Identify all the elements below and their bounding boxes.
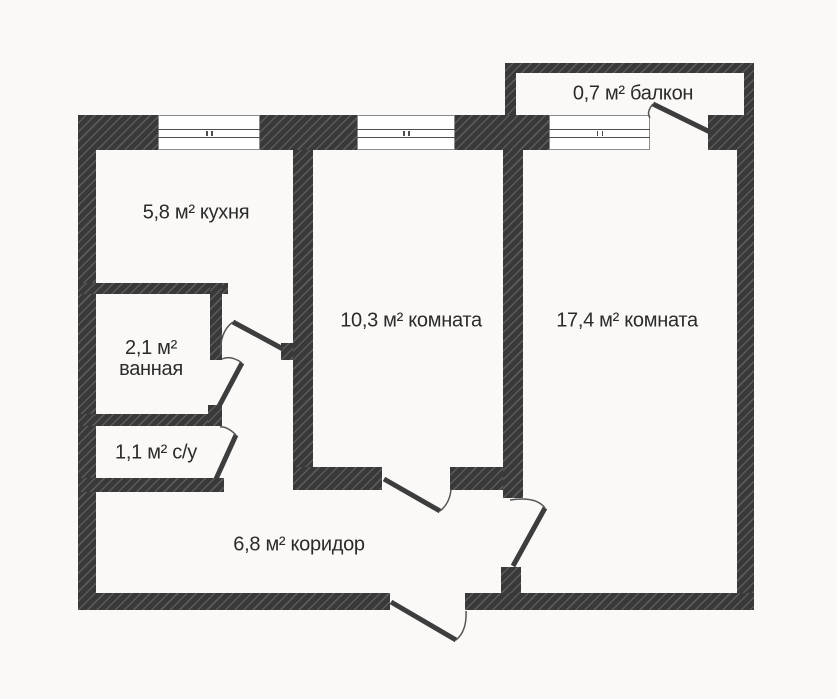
door-leaf-room-small bbox=[384, 479, 440, 511]
label-room-small: 10,3 м² комната bbox=[340, 311, 482, 332]
label-kitchen: 5,8 м² кухня bbox=[143, 203, 250, 224]
label-wc: 1,1 м² с/у bbox=[115, 443, 197, 464]
door-leaf-wc bbox=[216, 435, 236, 479]
door-leaf-balcony bbox=[653, 104, 710, 132]
label-balcony: 0,7 м² балкон bbox=[573, 84, 693, 105]
label-room-large: 17,4 м² комната bbox=[556, 311, 698, 332]
door-leaf-kitchen bbox=[233, 322, 283, 349]
label-bathroom: 2,1 м² ванная bbox=[119, 338, 183, 380]
door-leaf-entrance bbox=[391, 602, 456, 640]
door-leaf-bathroom bbox=[217, 363, 242, 410]
floor-plan: 0,7 м² балкон 5,8 м² кухня 10,3 м² комна… bbox=[0, 0, 837, 699]
door-leaf-room-large bbox=[513, 508, 545, 566]
door-arc-wc bbox=[220, 427, 236, 435]
door-arc-room-large bbox=[510, 499, 545, 508]
label-bathroom-area: 2,1 м² bbox=[119, 338, 183, 359]
door-arc-bathroom bbox=[222, 358, 242, 363]
door-arc-room-small bbox=[440, 489, 451, 511]
door-arc-kitchen bbox=[221, 322, 233, 355]
door-arc-entrance bbox=[456, 611, 466, 640]
label-corridor: 6,8 м² коридор bbox=[233, 535, 364, 556]
label-bathroom-name: ванная bbox=[119, 359, 183, 380]
